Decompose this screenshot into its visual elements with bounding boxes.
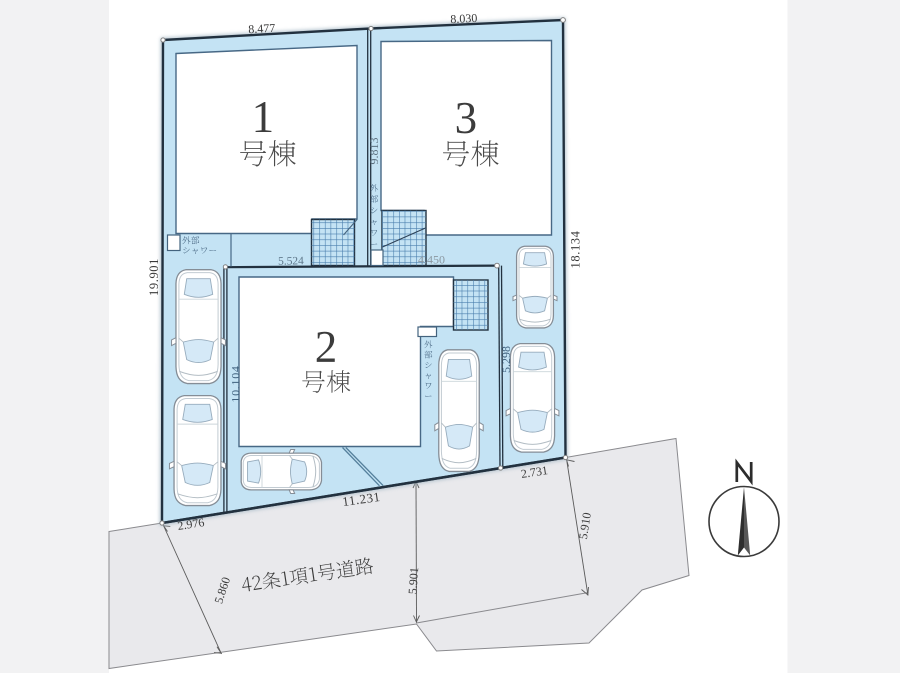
svg-text:2: 2 (315, 322, 338, 372)
svg-text:3: 3 (455, 93, 478, 143)
svg-text:5.298: 5.298 (499, 346, 513, 373)
svg-text:10.104: 10.104 (229, 365, 243, 402)
svg-text:18.134: 18.134 (568, 230, 582, 268)
svg-text:19.901: 19.901 (147, 258, 161, 296)
svg-text:5.901: 5.901 (405, 567, 421, 595)
svg-text:8.477: 8.477 (248, 21, 276, 36)
svg-text:4.450: 4.450 (418, 253, 445, 267)
svg-text:9.813: 9.813 (367, 138, 381, 165)
svg-text:8.030: 8.030 (450, 11, 478, 26)
svg-text:5.524: 5.524 (278, 255, 304, 267)
svg-text:1: 1 (252, 92, 275, 142)
